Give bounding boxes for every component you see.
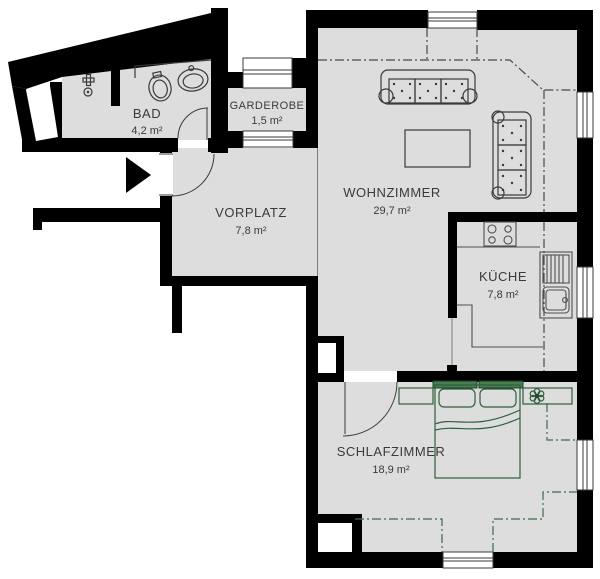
window-icon [243,58,292,88]
floor-plan-svg: BAD 4,2 m² GARDEROBE 1,5 m² VORPLATZ 7,8… [0,0,600,579]
shaft [318,523,352,552]
shaft [318,343,336,373]
room-area-kueche: 7,8 m² [487,289,519,301]
window-icon [243,131,293,147]
room-label-wohnzimmer: WOHNZIMMER [343,185,440,200]
room-area-schlafzimmer: 18,9 m² [372,464,410,476]
window-icon [443,552,493,568]
room-label-bad: BAD [133,106,161,121]
window-icon [577,440,593,490]
room-label-garderobe: GARDEROBE [230,100,305,112]
entrance-arrow-icon [126,157,151,193]
window-icon [577,92,593,138]
room-label-vorplatz: VORPLATZ [215,205,287,220]
window-icon [577,267,593,318]
room-label-schlafzimmer: SCHLAFZIMMER [337,444,446,459]
room-label-kueche: KÜCHE [479,269,527,284]
entrance-door-opening [159,153,173,196]
room-area-wohnzimmer: 29,7 m² [373,205,411,217]
window-icon [428,12,477,28]
room-area-garderobe: 1,5 m² [251,115,283,127]
room-area-bad: 4,2 m² [131,125,163,137]
floor-plan: BAD 4,2 m² GARDEROBE 1,5 m² VORPLATZ 7,8… [0,0,600,579]
room-area-vorplatz: 7,8 m² [235,225,267,237]
